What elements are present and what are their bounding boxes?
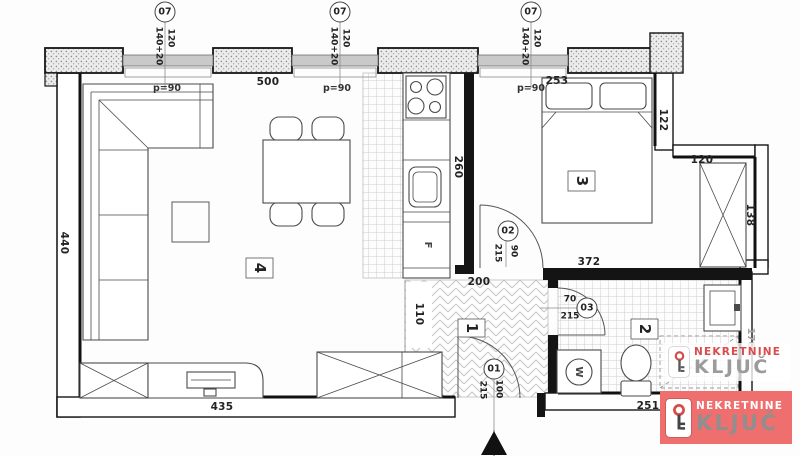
- door-dim: 215: [493, 244, 503, 263]
- chair: [270, 202, 302, 226]
- door-dim: 90: [509, 245, 519, 258]
- tv-foot: [204, 389, 216, 396]
- marker-id: 03: [580, 303, 593, 314]
- facade-step: [45, 73, 57, 86]
- marker-dim: 120: [532, 29, 542, 48]
- floor-plan: 07 140+20 120 07 140+20 120 07 140+20 12…: [0, 0, 800, 456]
- floor-plan-svg: 07 140+20 120 07 140+20 120 07 140+20 12…: [0, 0, 800, 456]
- wall-bedroom-bottom: [543, 268, 752, 280]
- dim-500: 500: [257, 76, 280, 88]
- dim-440: 440: [58, 232, 70, 255]
- dim-122: 122: [657, 109, 669, 132]
- door-dim: 70: [564, 295, 577, 305]
- window-1-sill: [125, 68, 211, 77]
- dim-200: 200: [468, 276, 491, 288]
- wall-kitchen-foot: [455, 265, 474, 274]
- door-marker-02: 02 215 90: [493, 221, 519, 262]
- room-label-bathroom: 2: [636, 324, 654, 334]
- dim-120: 120: [691, 154, 714, 166]
- door-dim: 215: [561, 312, 580, 322]
- fridge-label: F: [422, 242, 433, 249]
- key-icon: [669, 347, 689, 377]
- parapet-label: p=90: [517, 83, 545, 94]
- room-label-hall: 1: [463, 323, 481, 333]
- marker-dim: 140+20: [154, 27, 164, 66]
- key-icon: [666, 399, 691, 437]
- marker-dim: 140+20: [329, 27, 339, 66]
- pillow: [600, 83, 646, 109]
- marker-id: 01: [487, 364, 500, 375]
- marker-dim: 140+20: [520, 27, 530, 66]
- brand-watermark: NEKRETNINE KLJUČ: [663, 343, 790, 381]
- dim-253: 253: [546, 75, 569, 87]
- room-label-bedroom: 3: [573, 176, 591, 186]
- facade-block-3: [378, 48, 478, 73]
- wall-bath-left-a: [548, 280, 558, 288]
- door-dim: 215: [478, 381, 488, 400]
- facade-block-2: [213, 48, 292, 73]
- dim-260: 260: [452, 156, 464, 179]
- marker-id: 07: [333, 7, 346, 18]
- north-arrow-triangle: [481, 431, 507, 455]
- facade-block-corner: [45, 48, 123, 73]
- marker-id: 07: [158, 7, 171, 18]
- coffee-table: [172, 202, 209, 242]
- north-arrow: [481, 430, 507, 456]
- dim-435: 435: [211, 401, 234, 413]
- windows: [123, 55, 568, 77]
- wall-entrance-jamb: [537, 393, 545, 417]
- wall-kitchen-right: [464, 73, 474, 265]
- toilet-bowl: [621, 345, 651, 381]
- marker-dim: 120: [341, 29, 351, 48]
- wall-niche-top: [673, 145, 755, 157]
- facade-corner-column: [650, 33, 683, 73]
- dim-138: 138: [744, 204, 756, 227]
- parapet-label: p=90: [323, 83, 351, 94]
- washer-label: W: [573, 366, 584, 377]
- facade-block-4: [568, 48, 655, 73]
- brand-word: KLJUČ: [696, 413, 783, 434]
- chair: [312, 202, 344, 226]
- marker-dim: 120: [166, 29, 176, 48]
- marker-id: 02: [501, 226, 514, 237]
- dim-110: 110: [413, 303, 425, 326]
- wall-bottom-living: [57, 397, 455, 417]
- dining-table: [263, 140, 350, 203]
- chair: [312, 117, 344, 141]
- dim-372: 372: [578, 256, 601, 268]
- parapet-label: p=90: [153, 83, 181, 94]
- brand-badge: NEKRETNINE KLJUČ: [660, 391, 792, 444]
- corner-sofa: [83, 84, 213, 340]
- toilet-tank: [621, 381, 651, 396]
- faucet: [734, 304, 740, 311]
- door-dim: 100: [494, 380, 504, 399]
- marker-id: 07: [524, 7, 537, 18]
- room-label-living: 4: [251, 263, 269, 273]
- chair: [270, 117, 302, 141]
- kitchen-floor-tiles: [363, 73, 403, 278]
- window-1: [123, 55, 213, 66]
- dim-251: 251: [637, 400, 660, 412]
- brand-word: KLJUČ: [694, 358, 781, 377]
